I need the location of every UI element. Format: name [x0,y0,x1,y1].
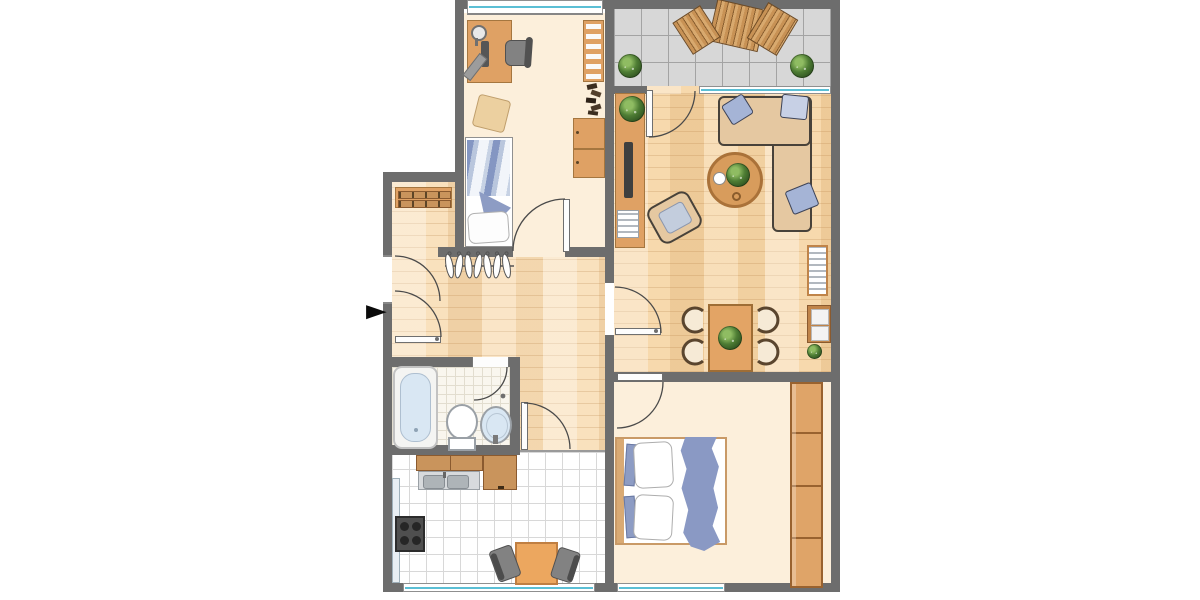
kitchen-door-arc [524,403,570,449]
dining-chair-top-left [683,308,703,332]
hanger-icon [492,254,501,279]
hanger-icon [444,254,455,279]
hanger-icon [464,254,473,279]
dining-chair-bottom-left [683,340,703,364]
hanger-hook [476,252,479,255]
entrance-door-arc [395,291,441,337]
dining-chair-top-right [758,308,778,332]
apartment-floor-plan: ► [383,0,840,592]
entrance-door-arc-2 [395,256,440,301]
hanger-icon [501,254,512,279]
dining-chair-bottom-right [758,340,778,364]
bedroom-door-arc [617,382,663,428]
office-door-arc [513,199,565,251]
hanger-hook [467,252,470,255]
balcony-door-arc [649,91,695,137]
door-swing-overlay [383,0,840,592]
floor-plan-canvas: ► [0,0,1200,600]
hanger-icon [473,254,484,279]
hanger-hook [505,252,508,255]
hanger-icon [454,254,464,279]
hanger-hook [448,252,451,255]
hanger-hook [486,252,489,255]
living-door-handle [654,329,658,333]
hanger-icon [482,254,492,279]
entrance-door-handle [435,337,439,341]
coat-rail-group [444,252,514,279]
living-door-arc [615,287,661,333]
bathroom-door-handle [501,394,506,399]
hanger-hook [495,252,498,255]
hanger-hook [457,252,460,255]
